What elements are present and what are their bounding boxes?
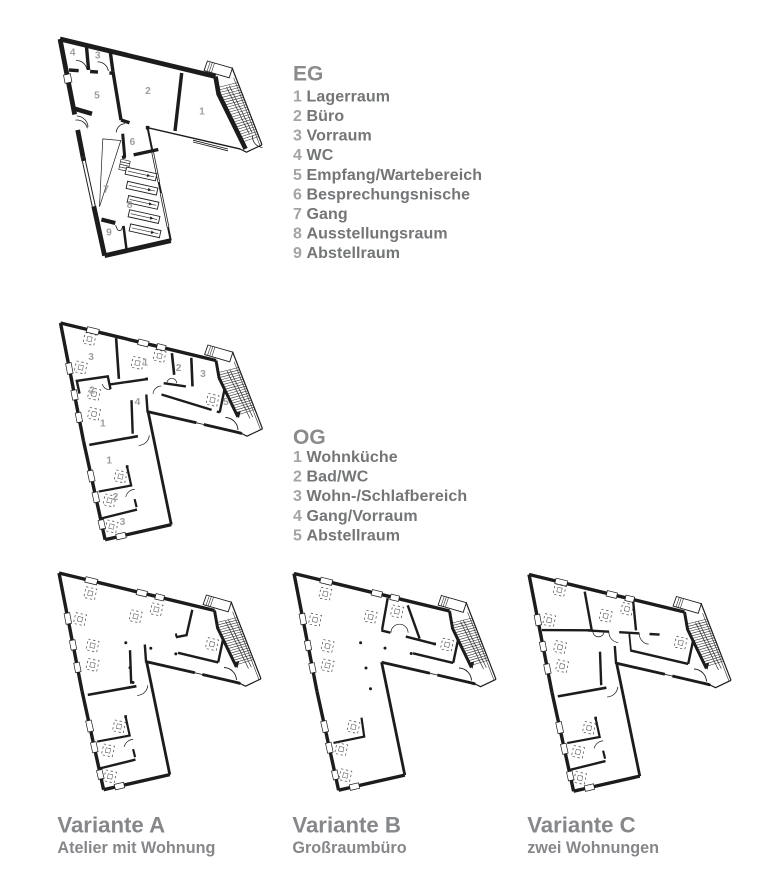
svg-text:6: 6 (129, 137, 135, 148)
svg-text:5Abstellraum: 5Abstellraum (293, 527, 400, 544)
svg-text:1Wohnküche: 1Wohnküche (293, 449, 398, 466)
svg-text:2: 2 (145, 86, 151, 97)
svg-text:Großraumbüro: Großraumbüro (292, 839, 406, 857)
svg-text:2Büro: 2Büro (293, 108, 344, 125)
svg-text:1: 1 (106, 456, 112, 467)
svg-text:OG: OG (293, 426, 326, 449)
svg-text:Atelier mit Wohnung: Atelier mit Wohnung (57, 839, 215, 857)
svg-text:2: 2 (113, 492, 119, 503)
svg-text:3: 3 (88, 352, 94, 363)
svg-text:Variante B: Variante B (292, 813, 401, 838)
svg-text:4WC: 4WC (293, 147, 334, 164)
svg-text:5Empfang/Wartebereich: 5Empfang/Wartebereich (293, 167, 482, 184)
svg-text:8Ausstellungsraum: 8Ausstellungsraum (293, 226, 448, 243)
svg-text:7: 7 (103, 185, 109, 196)
svg-text:Variante C: Variante C (527, 813, 636, 838)
svg-text:5: 5 (94, 91, 100, 102)
svg-text:EG: EG (293, 63, 323, 86)
svg-text:1: 1 (199, 107, 205, 118)
svg-text:1: 1 (100, 418, 106, 429)
svg-text:1Lagerraum: 1Lagerraum (293, 88, 390, 105)
svg-text:2Bad/WC: 2Bad/WC (293, 469, 369, 486)
svg-text:8: 8 (127, 200, 133, 211)
svg-text:3Wohn-/Schlafbereich: 3Wohn-/Schlafbereich (293, 488, 467, 505)
svg-text:7Gang: 7Gang (293, 206, 348, 223)
svg-text:4: 4 (70, 48, 76, 59)
svg-text:2: 2 (89, 386, 95, 397)
svg-text:5: 5 (223, 397, 229, 408)
svg-text:Variante A: Variante A (57, 813, 165, 838)
svg-text:4Gang/Vorraum: 4Gang/Vorraum (293, 508, 418, 525)
svg-text:6Besprechungsnische: 6Besprechungsnische (293, 186, 470, 203)
svg-text:9Abstellraum: 9Abstellraum (293, 245, 400, 262)
svg-text:2: 2 (176, 363, 182, 374)
svg-text:3Vorraum: 3Vorraum (293, 128, 372, 145)
svg-text:3: 3 (200, 369, 206, 380)
svg-text:3: 3 (95, 51, 101, 62)
svg-text:9: 9 (106, 228, 112, 239)
svg-text:4: 4 (135, 397, 141, 408)
svg-text:1: 1 (142, 357, 148, 368)
svg-text:3: 3 (120, 517, 126, 528)
svg-text:zwei Wohnungen: zwei Wohnungen (527, 839, 659, 857)
